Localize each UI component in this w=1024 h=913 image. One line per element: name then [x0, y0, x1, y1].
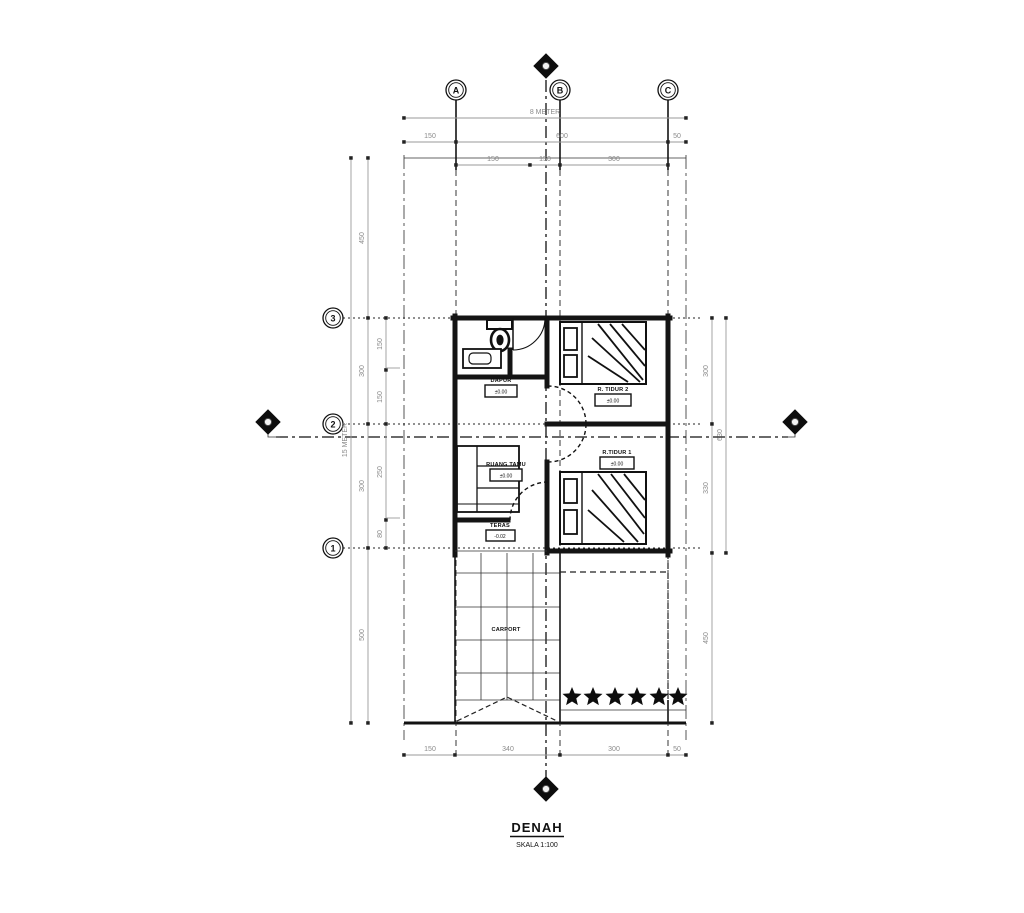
grid-bubble-1: 1 — [323, 538, 343, 558]
dim-bottom-3: 300 — [608, 746, 620, 753]
drawing-scale: SKALA 1:100 — [516, 842, 558, 849]
dim-left-sub-1: 150 — [377, 338, 384, 350]
dim-right-seg-1: 300 — [703, 365, 710, 377]
bed-icon — [560, 322, 646, 384]
bed-icon — [560, 472, 646, 544]
dimensions-right: 300 330 450 630 — [703, 316, 728, 725]
dim-left-seg-4: 500 — [359, 629, 366, 641]
grid-label-a: A — [453, 85, 460, 95]
grid-label-2: 2 — [330, 419, 335, 429]
dim-top-r2-1: 150 — [424, 133, 436, 140]
dim-top-overall: 8 METER — [530, 109, 560, 116]
svg-text:R.TIDUR 1: R.TIDUR 1 — [602, 450, 631, 456]
dim-bottom-4: 50 — [673, 746, 681, 753]
carport-area — [455, 553, 560, 723]
bedroom1-door-swing — [548, 424, 586, 462]
grid-bubble-2: 2 — [323, 414, 343, 434]
svg-text:±0.00: ±0.00 — [500, 474, 513, 480]
grid-label-3: 3 — [330, 313, 335, 323]
floor-plan-sheet: A B C 3 2 1 — [0, 0, 1024, 913]
grid-bubble-c: C — [658, 80, 678, 100]
svg-text:R. TIDUR 2: R. TIDUR 2 — [598, 387, 629, 393]
section-marker-right — [782, 409, 807, 434]
grid-label-b: B — [557, 85, 564, 95]
room-label-dapur: DAPUR ±0.00 — [485, 378, 517, 397]
dim-top-r2-2: 600 — [556, 133, 568, 140]
dim-left-sub-4: 80 — [377, 530, 384, 538]
svg-text:RUANG TAMU: RUANG TAMU — [486, 462, 526, 468]
room-label-r-tidur-1: R.TIDUR 1 ±0.00 — [600, 450, 634, 469]
section-marker-left — [255, 409, 280, 434]
bedroom2-door-swing — [548, 386, 586, 424]
svg-text:±0.00: ±0.00 — [607, 399, 620, 405]
fixtures — [457, 320, 646, 544]
toilet-icon — [487, 320, 512, 351]
bathroom-door-swing — [513, 318, 545, 350]
section-marker-bottom — [533, 776, 558, 801]
drawing-title: DENAH — [511, 820, 562, 835]
grid-label-c: C — [665, 85, 672, 95]
svg-text:-0.02: -0.02 — [494, 534, 506, 540]
dim-left-sub-2: 150 — [377, 391, 384, 403]
svg-text:DAPUR: DAPUR — [491, 378, 512, 384]
dim-right-seg-2: 330 — [703, 482, 710, 494]
plant-star-icon — [668, 687, 687, 705]
dimensions-left: 15 METER 450 300 300 500 150 150 250 80 — [342, 156, 400, 725]
property-boundary — [404, 155, 686, 740]
floor-plan-canvas: A B C 3 2 1 — [0, 0, 1024, 913]
sink-icon — [463, 349, 501, 368]
room-label-teras: TERAS -0.02 — [486, 523, 515, 541]
plant-star-icon — [649, 687, 668, 705]
plant-star-icon — [583, 687, 602, 705]
plant-star-icon — [627, 687, 646, 705]
title-block: DENAH SKALA 1:100 — [510, 820, 564, 849]
room-label-ruang-tamu: RUANG TAMU ±0.00 — [486, 462, 526, 481]
driveway-slope-arrow — [457, 697, 557, 721]
svg-text:TERAS: TERAS — [490, 523, 510, 529]
dim-top-r3-3: 300 — [608, 156, 620, 163]
svg-text:±0.00: ±0.00 — [495, 390, 508, 396]
plant-star-icon — [605, 687, 624, 705]
dim-left-seg-3: 300 — [359, 480, 366, 492]
dim-left-overall: 15 METER — [342, 423, 349, 457]
plant-star-icon — [562, 687, 581, 705]
dim-top-r2-3: 50 — [673, 133, 681, 140]
grid-label-1: 1 — [330, 543, 335, 553]
dim-bottom-1: 150 — [424, 746, 436, 753]
svg-text:±0.00: ±0.00 — [611, 462, 624, 468]
dim-top-r3-2: 150 — [539, 156, 551, 163]
garden-area — [560, 553, 688, 723]
section-marker-top — [533, 53, 558, 78]
dim-right-overall: 630 — [717, 429, 724, 441]
grid-bubble-a: A — [446, 80, 466, 100]
grid-bubble-b: B — [550, 80, 570, 100]
dim-left-seg-2: 300 — [359, 365, 366, 377]
room-label-r-tidur-2: R. TIDUR 2 ±0.00 — [595, 387, 631, 406]
dim-right-seg-3: 450 — [703, 632, 710, 644]
dimensions-bottom: 150 340 300 50 — [402, 746, 688, 757]
dim-left-seg-1: 450 — [359, 232, 366, 244]
grid-bubble-3: 3 — [323, 308, 343, 328]
dim-top-r3-1: 150 — [487, 156, 499, 163]
room-label-carport: CARPORT — [491, 627, 520, 633]
dim-bottom-2: 340 — [502, 746, 514, 753]
dim-left-sub-3: 250 — [377, 466, 384, 478]
